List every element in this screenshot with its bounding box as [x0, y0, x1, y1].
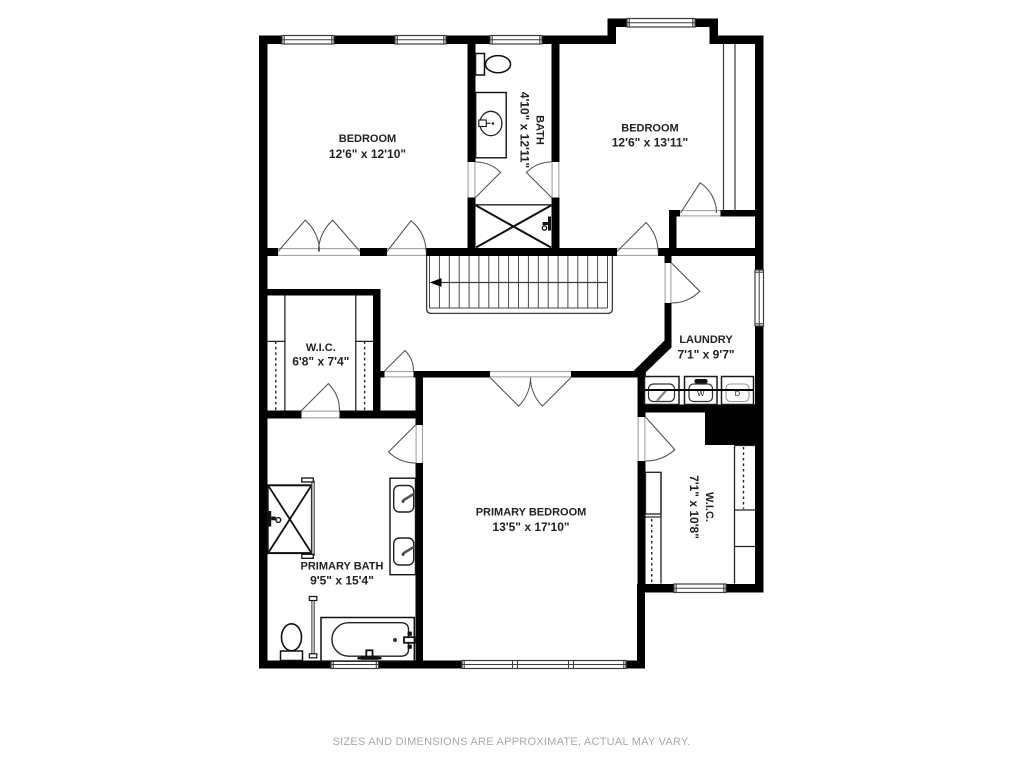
- svg-text:PRIMARY BEDROOM: PRIMARY BEDROOM: [476, 507, 587, 519]
- svg-text:BEDROOM: BEDROOM: [339, 133, 396, 145]
- svg-text:BEDROOM: BEDROOM: [621, 123, 678, 135]
- svg-text:PRIMARY BATH: PRIMARY BATH: [301, 561, 384, 573]
- svg-text:7'1" x 10'8": 7'1" x 10'8": [687, 475, 701, 539]
- svg-text:7'1" x 9'7": 7'1" x 9'7": [677, 348, 734, 362]
- svg-text:W.I.C.: W.I.C.: [703, 492, 715, 522]
- svg-text:12'6" x 13'11": 12'6" x 13'11": [612, 136, 688, 150]
- svg-text:6'8" x 7'4": 6'8" x 7'4": [292, 354, 349, 368]
- svg-text:9'5" x 15'4": 9'5" x 15'4": [310, 574, 374, 588]
- svg-text:LAUNDRY: LAUNDRY: [679, 334, 733, 346]
- svg-text:13'5" x 17'10": 13'5" x 17'10": [492, 520, 569, 534]
- svg-text:BATH: BATH: [534, 115, 546, 145]
- svg-text:12'6" x 12'10": 12'6" x 12'10": [329, 147, 406, 161]
- svg-text:4'10" x 12'11": 4'10" x 12'11": [518, 92, 532, 168]
- svg-text:SIZES AND DIMENSIONS ARE APPRO: SIZES AND DIMENSIONS ARE APPROXIMATE, AC…: [333, 736, 691, 748]
- svg-text:W.I.C.: W.I.C.: [306, 342, 336, 354]
